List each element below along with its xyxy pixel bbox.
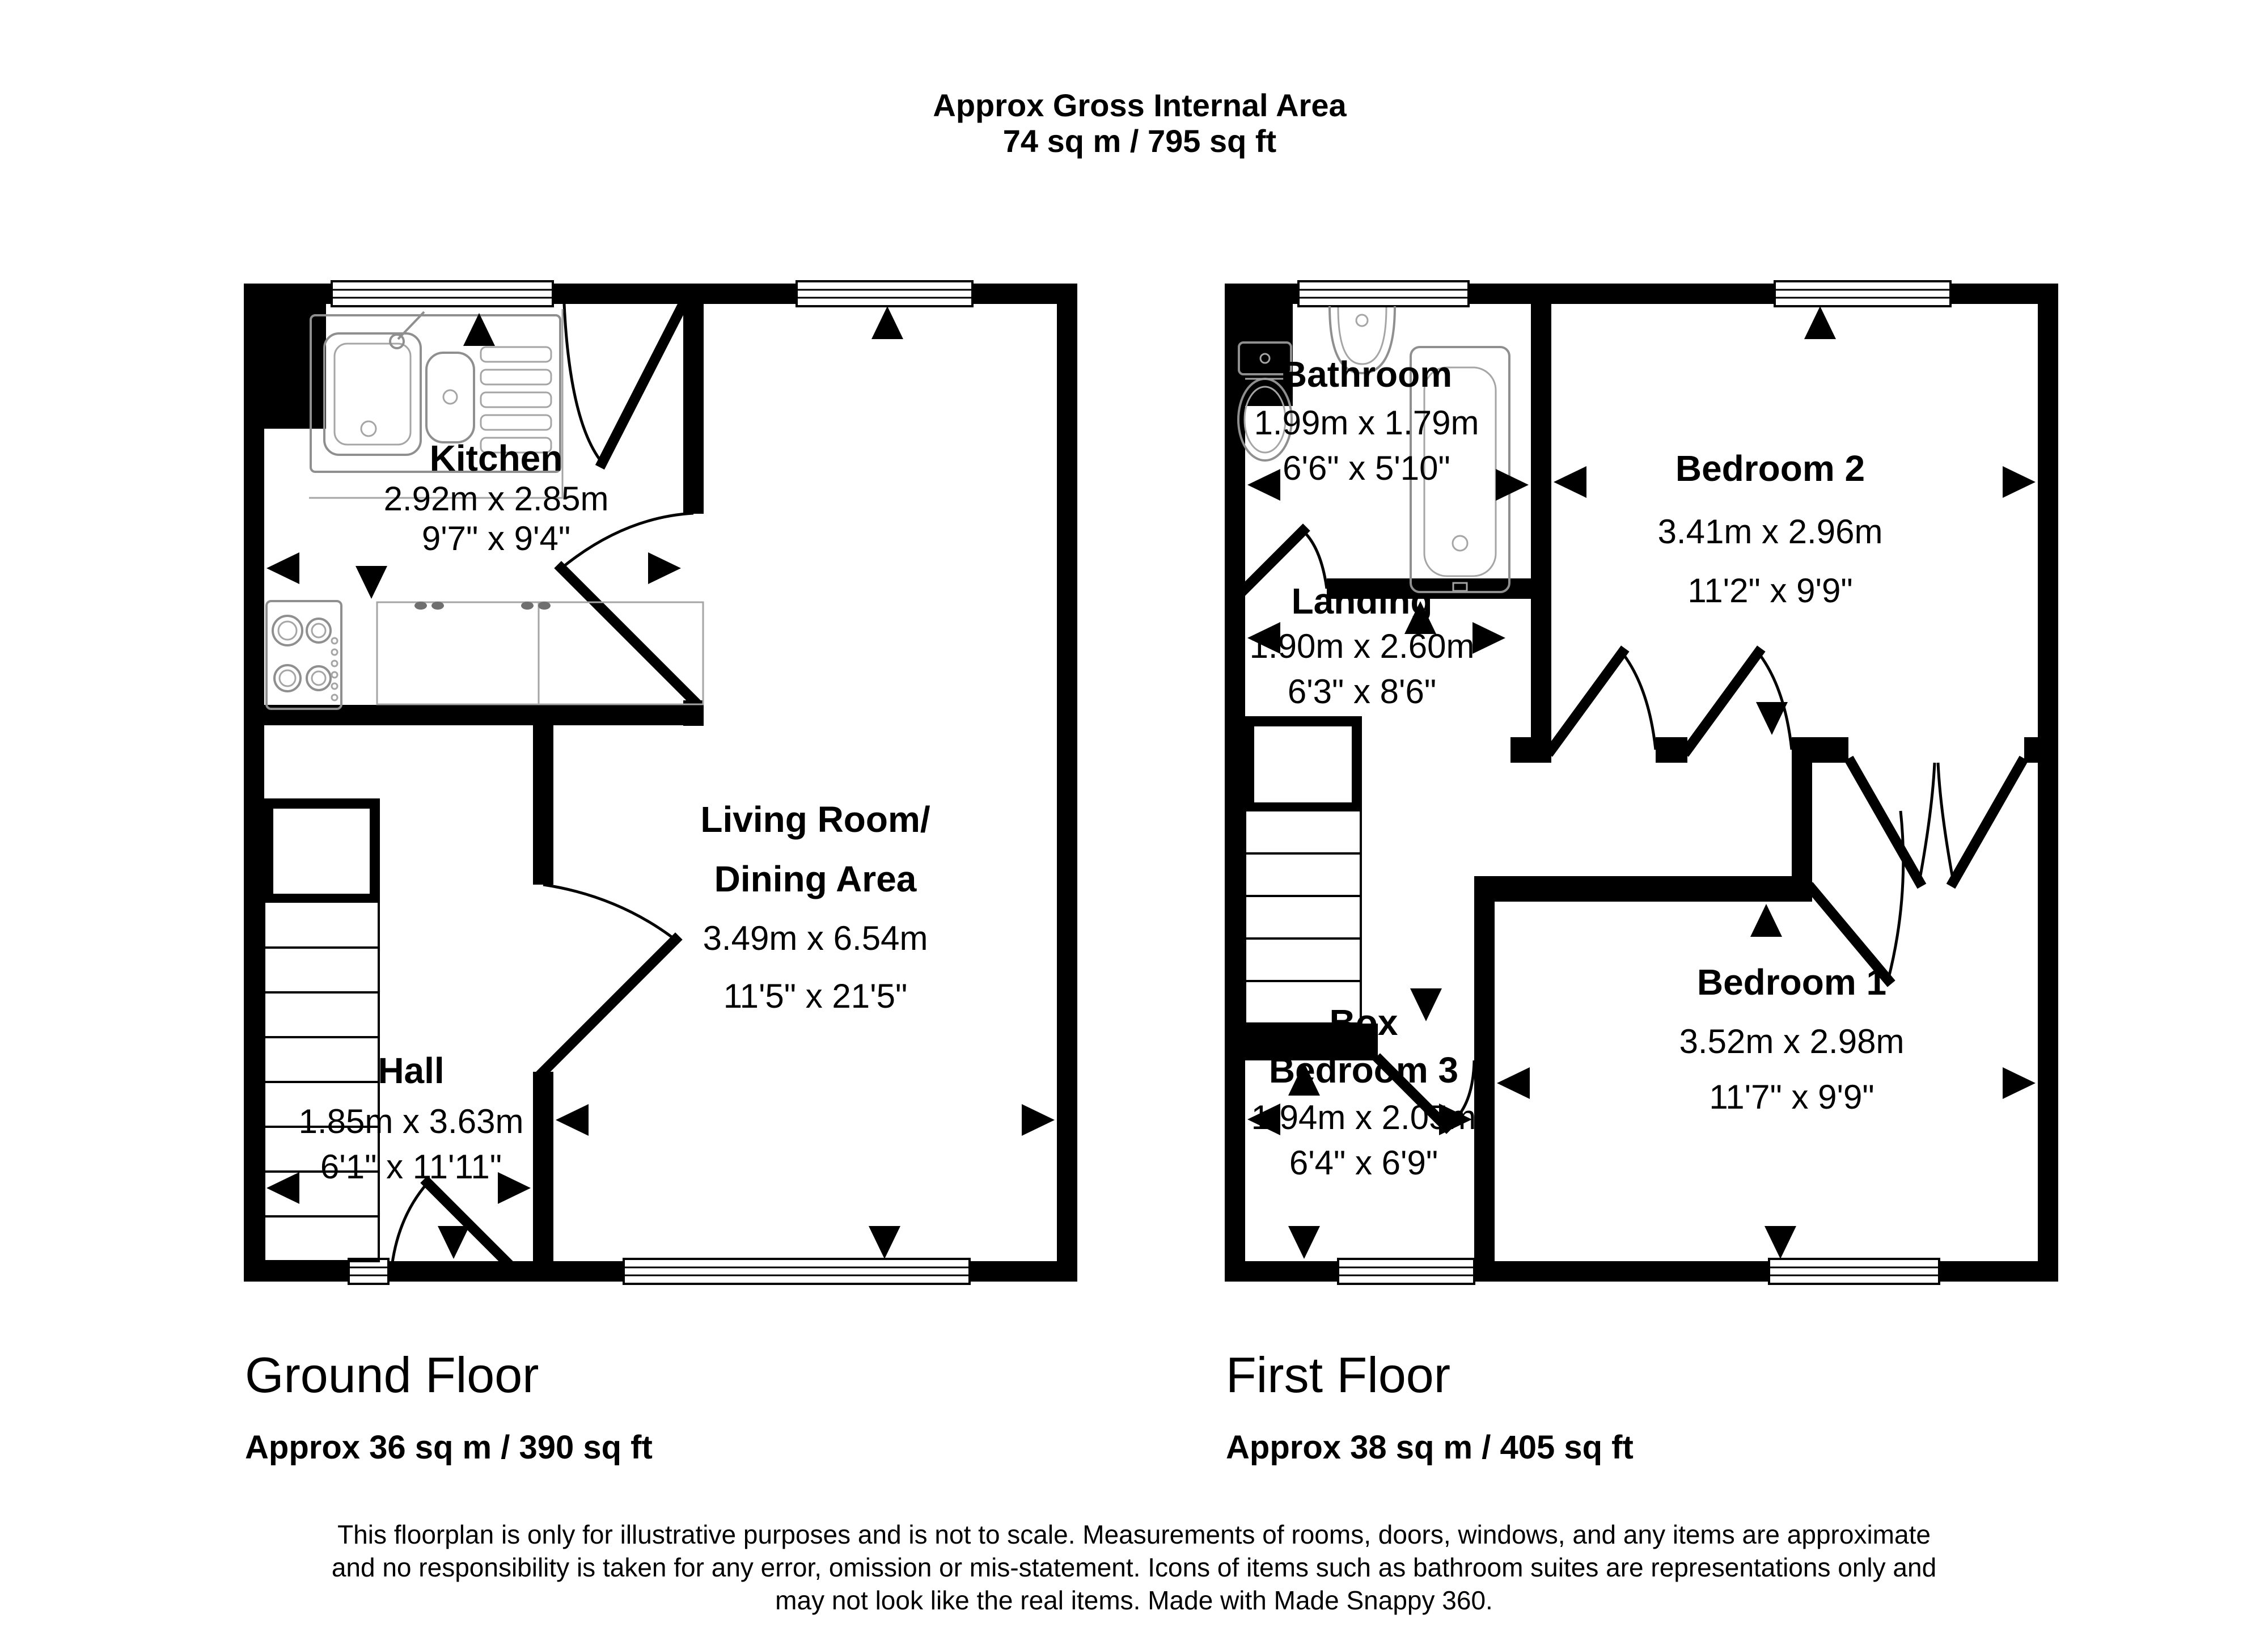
stairs-icon xyxy=(1245,717,1361,1024)
room-label-landing: Landing 1.90m x 2.60m 6'3" x 8'6" xyxy=(1250,581,1475,711)
measure-arrow-right-icon xyxy=(2003,466,2036,498)
svg-text:6'3" x 8'6": 6'3" x 8'6" xyxy=(1288,673,1436,711)
hall-living-door xyxy=(543,885,675,1072)
measure-arrow-left-icon xyxy=(1247,469,1280,501)
svg-text:6'1" x 11'11": 6'1" x 11'11" xyxy=(320,1148,502,1186)
bathroom-window xyxy=(1298,281,1469,306)
svg-text:1.99m x 1.79m: 1.99m x 1.79m xyxy=(1254,404,1479,442)
svg-text:6'4" x 6'9": 6'4" x 6'9" xyxy=(1289,1144,1438,1182)
svg-text:Dining Area: Dining Area xyxy=(714,859,917,899)
landing-cupboard-door xyxy=(1687,653,1792,750)
svg-text:Kitchen: Kitchen xyxy=(430,438,563,479)
measure-arrow-right-icon xyxy=(2003,1067,2036,1099)
svg-text:3.52m x 2.98m: 3.52m x 2.98m xyxy=(1679,1022,1905,1060)
ground-floor-plan: Kitchen 2.92m x 2.85m 9'7" x 9'4" Living… xyxy=(244,281,1077,1284)
room-label-bathroom: Bathroom 1.99m x 1.79m 6'6" x 5'10" xyxy=(1254,354,1479,487)
measure-arrow-right-icon xyxy=(1472,622,1505,654)
room-label-kitchen: Kitchen 2.92m x 2.85m 9'7" x 9'4" xyxy=(384,438,609,557)
chimney-block xyxy=(244,304,326,429)
measure-arrow-down-icon xyxy=(1756,702,1788,735)
svg-text:11'5" x 21'5": 11'5" x 21'5" xyxy=(723,977,908,1015)
svg-text:Bedroom 3: Bedroom 3 xyxy=(1269,1050,1458,1090)
measure-arrow-left-icon xyxy=(1497,1067,1530,1099)
svg-text:3.49m x 6.54m: 3.49m x 6.54m xyxy=(703,919,928,957)
bedroom1-window xyxy=(1769,1259,1939,1284)
first-floor-plan: Bathroom 1.99m x 1.79m 6'6" x 5'10" Bedr… xyxy=(1225,281,2058,1284)
measure-arrow-left-icon xyxy=(266,1172,299,1204)
svg-text:2.92m x 2.85m: 2.92m x 2.85m xyxy=(384,480,609,518)
measure-arrow-up-icon xyxy=(1804,306,1836,339)
wardrobe-double-doors xyxy=(1851,763,2021,882)
measure-arrow-down-icon xyxy=(869,1226,900,1259)
first-floor-label: First Floor xyxy=(1226,1347,1450,1403)
first-floor-area: Approx 38 sq m / 405 sq ft xyxy=(1226,1429,1634,1466)
bedroom2-door xyxy=(1551,653,1656,750)
svg-text:Box: Box xyxy=(1330,1002,1398,1043)
living-room-top-window xyxy=(797,281,972,306)
bathroom-door xyxy=(1245,531,1327,589)
back-door xyxy=(564,304,683,463)
kitchen-living-door xyxy=(561,513,693,700)
measure-arrow-up-icon xyxy=(463,313,495,346)
svg-text:may not look like the real ite: may not look like the real items. Made w… xyxy=(775,1586,1493,1615)
svg-text:This floorplan is only for ill: This floorplan is only for illustrative … xyxy=(337,1520,1931,1549)
kitchen-window xyxy=(332,281,553,306)
floorplan-drawing: Approx Gross Internal Area 74 sq m / 795… xyxy=(0,0,2268,1636)
ground-floor-area: Approx 36 sq m / 390 sq ft xyxy=(245,1429,653,1466)
measure-arrow-right-icon xyxy=(1496,469,1529,501)
svg-text:and no responsibility is taken: and no responsibility is taken for any e… xyxy=(332,1553,1936,1582)
bedroom2-window xyxy=(1775,281,1950,306)
floorplan-page: Approx Gross Internal Area 74 sq m / 795… xyxy=(0,0,2268,1636)
measure-arrow-left-icon xyxy=(266,552,299,584)
measure-arrow-left-icon xyxy=(1554,466,1586,498)
measure-arrow-down-icon xyxy=(1288,1226,1320,1259)
room-label-bedroom2: Bedroom 2 3.41m x 2.96m 11'2" x 9'9" xyxy=(1658,448,1883,610)
measure-arrow-right-icon xyxy=(498,1172,531,1204)
svg-text:1.94m x 2.05m: 1.94m x 2.05m xyxy=(1251,1098,1476,1136)
svg-text:Bathroom: Bathroom xyxy=(1281,354,1452,395)
measure-arrow-down-icon xyxy=(356,566,387,599)
svg-text:Living Room/: Living Room/ xyxy=(700,799,930,840)
svg-text:1.90m x 2.60m: 1.90m x 2.60m xyxy=(1250,627,1475,665)
hall-window xyxy=(349,1259,388,1284)
gross-area-title: Approx Gross Internal Area xyxy=(933,87,1347,123)
disclaimer: This floorplan is only for illustrative … xyxy=(332,1520,1936,1615)
hob-icon xyxy=(266,601,341,709)
measure-arrow-up-icon xyxy=(1750,904,1782,937)
kitchen-counter xyxy=(377,602,703,704)
svg-text:Hall: Hall xyxy=(378,1050,444,1091)
svg-text:11'7" x 9'9": 11'7" x 9'9" xyxy=(1709,1078,1874,1116)
measure-arrow-down-icon xyxy=(438,1226,469,1259)
measure-arrow-up-icon xyxy=(871,306,903,339)
measure-arrow-down-icon xyxy=(1410,988,1442,1021)
svg-text:3.41m x 2.96m: 3.41m x 2.96m xyxy=(1658,513,1883,551)
gross-area-value: 74 sq m / 795 sq ft xyxy=(1003,123,1276,159)
svg-text:Landing: Landing xyxy=(1292,581,1433,622)
svg-text:9'7" x 9'4": 9'7" x 9'4" xyxy=(422,519,570,557)
measure-arrow-left-icon xyxy=(556,1104,589,1136)
svg-text:1.85m x 3.63m: 1.85m x 3.63m xyxy=(299,1102,524,1140)
svg-text:Bedroom 1: Bedroom 1 xyxy=(1697,962,1886,1003)
svg-text:6'6" x 5'10": 6'6" x 5'10" xyxy=(1283,449,1450,487)
box-bedroom3-window xyxy=(1338,1259,1474,1284)
svg-text:Bedroom 2: Bedroom 2 xyxy=(1675,448,1865,489)
measure-arrow-right-icon xyxy=(1022,1104,1055,1136)
room-label-bedroom1: Bedroom 1 3.52m x 2.98m 11'7" x 9'9" xyxy=(1679,962,1905,1116)
living-room-bottom-window xyxy=(624,1259,970,1284)
measure-arrow-down-icon xyxy=(1765,1226,1796,1259)
svg-text:11'2" x 9'9": 11'2" x 9'9" xyxy=(1687,572,1852,610)
ground-floor-label: Ground Floor xyxy=(245,1347,539,1403)
measure-arrow-right-icon xyxy=(648,552,681,584)
room-label-living: Living Room/ Dining Area 3.49m x 6.54m 1… xyxy=(700,799,930,1015)
room-label-hall: Hall 1.85m x 3.63m 6'1" x 11'11" xyxy=(299,1050,524,1186)
